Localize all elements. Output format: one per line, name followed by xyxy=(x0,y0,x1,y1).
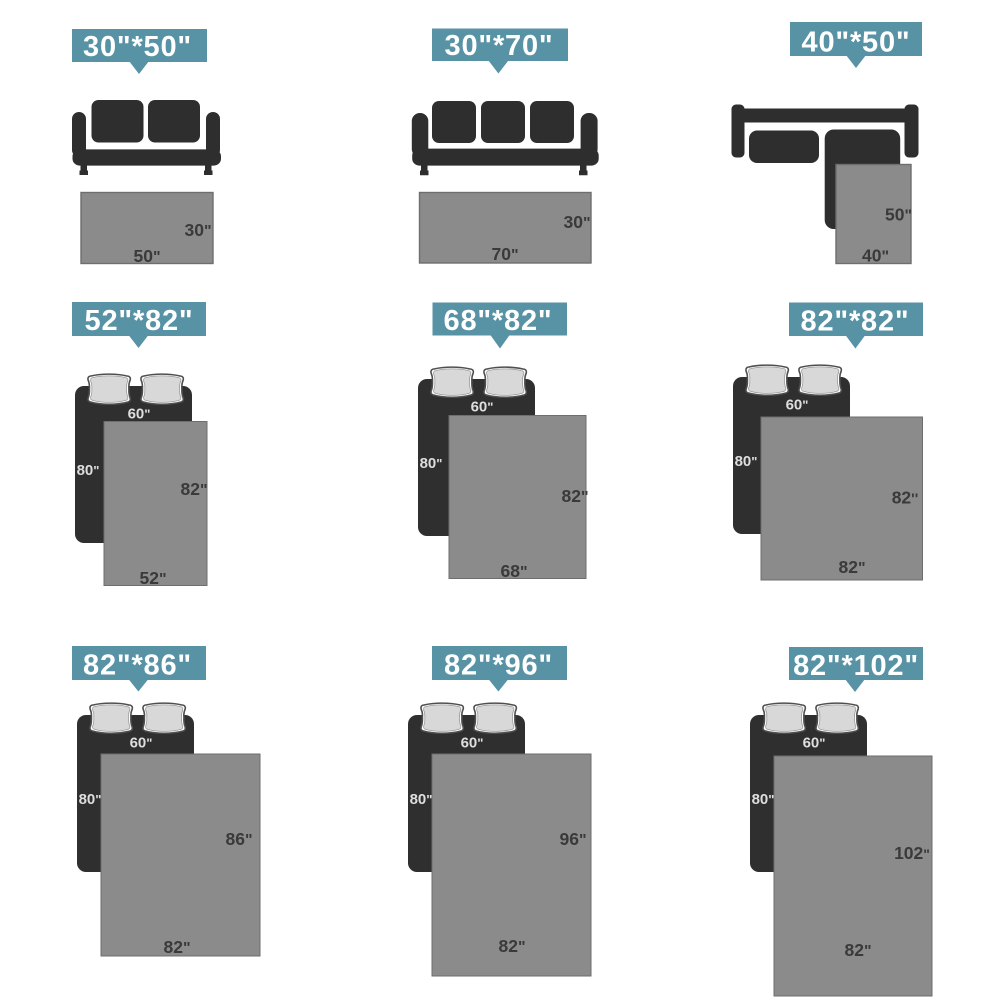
svg-text:82'': 82'' xyxy=(892,488,919,508)
svg-text:50": 50" xyxy=(133,246,160,266)
svg-text:52": 52" xyxy=(139,568,166,588)
svg-text:96": 96" xyxy=(559,829,586,849)
svg-text:30"*50": 30"*50" xyxy=(83,31,192,63)
svg-text:82"*82": 82"*82" xyxy=(801,306,910,338)
svg-text:70": 70" xyxy=(491,244,518,264)
svg-text:82"*96": 82"*96" xyxy=(444,650,553,682)
svg-text:82": 82" xyxy=(180,479,207,499)
svg-text:52"*82": 52"*82" xyxy=(85,305,194,337)
svg-text:86": 86" xyxy=(225,829,252,849)
svg-text:102": 102" xyxy=(894,843,930,863)
svg-text:82": 82" xyxy=(844,940,871,960)
svg-text:30": 30" xyxy=(563,212,590,232)
svg-text:68"*82": 68"*82" xyxy=(444,305,553,337)
svg-text:82": 82" xyxy=(838,557,865,577)
svg-text:82": 82" xyxy=(163,937,190,957)
svg-text:40": 40" xyxy=(862,246,889,266)
svg-text:40"*50": 40"*50" xyxy=(802,27,911,59)
svg-text:82"*86": 82"*86" xyxy=(83,650,192,682)
svg-text:30"*70": 30"*70" xyxy=(445,30,554,62)
svg-text:82": 82" xyxy=(561,486,588,506)
svg-text:68": 68" xyxy=(500,561,527,581)
svg-text:82": 82" xyxy=(498,936,525,956)
svg-text:50": 50" xyxy=(885,205,912,225)
svg-text:30": 30" xyxy=(184,220,211,240)
svg-text:82"*102": 82"*102" xyxy=(793,650,919,682)
